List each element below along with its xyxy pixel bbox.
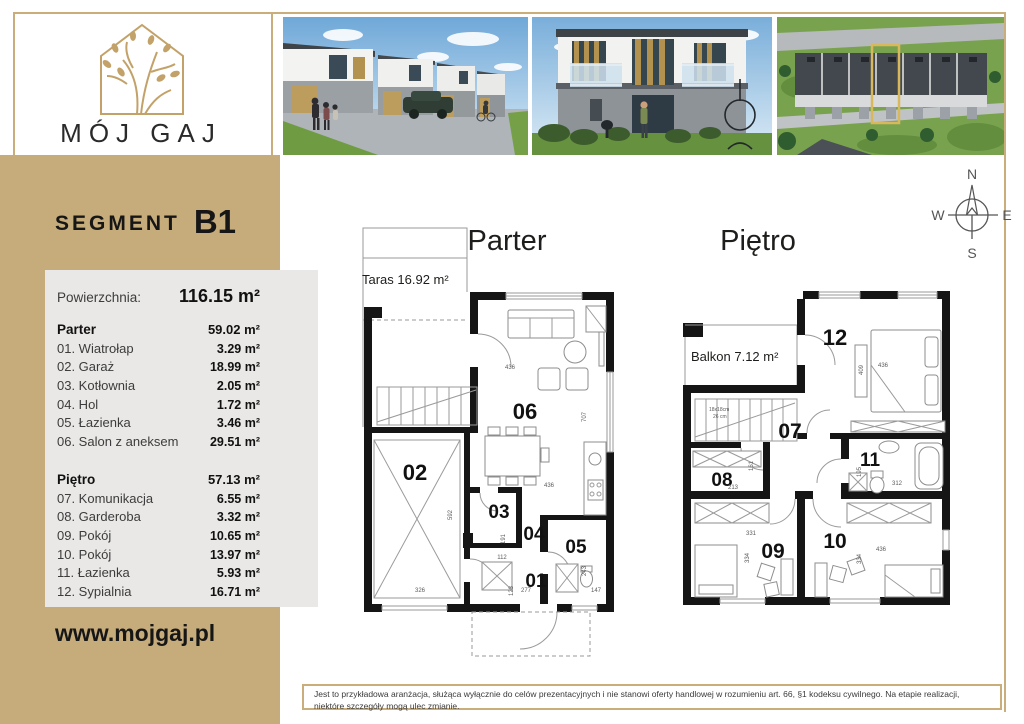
room-number: 12 [823, 325, 847, 350]
brochure-page: MÓJ GAJ [0, 0, 1024, 724]
room-row: 11. Łazienka5.93 m² [57, 565, 260, 584]
room-row: 02. Garaż18.99 m² [57, 359, 260, 378]
dim-label: 147 [591, 588, 602, 594]
segment-label: SEGMENT [55, 212, 180, 235]
terrace-label: Taras 16.92 m² [362, 272, 449, 287]
dim-label: 409 [859, 364, 865, 375]
stairs-note: 18x18cm [709, 407, 729, 413]
room-row: 03. Kotłownia2.05 m² [57, 378, 260, 397]
disclaimer-text: Jest to przykładowa aranżacja, służąca w… [314, 689, 959, 711]
entry-closet [482, 562, 512, 590]
compass-w: W [931, 207, 945, 223]
dim-label: 112 [497, 555, 507, 561]
website-link[interactable]: www.mojgaj.pl [55, 620, 215, 647]
room-row: 10. Pokój13.97 m² [57, 547, 260, 566]
brand-name: MÓJ GAJ [60, 118, 222, 148]
compass-rose: N W E S [930, 163, 1015, 263]
dim-label: 707 [582, 411, 588, 422]
porch [472, 612, 590, 656]
photo-aerial-view [777, 17, 1004, 155]
room-number: 02 [403, 460, 427, 485]
stairs [377, 387, 477, 425]
floor-header: Parter59.02 m² [57, 322, 260, 341]
dim-label: 213 [728, 485, 739, 491]
room-row: 09. Pokój10.65 m² [57, 528, 260, 547]
room-number: 09 [761, 540, 784, 563]
corridor-closet [851, 421, 945, 432]
logo-icon: MÓJ GAJ [15, 14, 267, 151]
disclaimer-box: Jest to przykładowa aranżacja, służąca w… [302, 684, 1002, 710]
dim-label: 436 [876, 547, 887, 553]
parter-title: Parter [468, 225, 547, 257]
wardrobe-09 [695, 503, 769, 523]
dim-label: 334 [745, 552, 751, 563]
room-row: 07. Komunikacja6.55 m² [57, 491, 260, 510]
wardrobe-10 [847, 503, 931, 523]
house-front [556, 29, 748, 139]
room-number: 03 [488, 502, 509, 523]
photo-street-view [283, 17, 528, 155]
room-row: 12. Sypialnia16.71 m² [57, 584, 260, 603]
dim-label: 331 [746, 531, 757, 537]
photo-house-front [532, 17, 772, 155]
floorplan-pietro: Piętro Balkon 7.12 m² [665, 212, 965, 667]
segment-heading: SEGMENTB1 [55, 203, 236, 241]
dim-label: 277 [521, 588, 532, 594]
dim-label: 334 [857, 553, 863, 564]
segment-number: B1 [194, 203, 236, 240]
area-list-panel: Powierzchnia: 116.15 m² Parter59.02 m² 0… [45, 270, 318, 607]
total-area-label: Powierzchnia: [57, 290, 141, 305]
room-row: 04. Hol1.72 m² [57, 397, 260, 416]
room-number: 04 [523, 524, 545, 545]
dim-label: 592 [448, 509, 454, 520]
dim-label: 326 [415, 588, 426, 594]
dim-label: 312 [892, 481, 903, 487]
dim-label: 436 [878, 363, 889, 369]
tree-leaves-icon [101, 31, 180, 83]
room-number: 11 [860, 450, 881, 471]
bedroom-10-furniture [815, 557, 943, 597]
compass-s: S [967, 245, 976, 261]
dim-label: 436 [544, 483, 555, 489]
dim-label: 161 [749, 460, 755, 471]
dim-label: 243 [582, 565, 588, 576]
balcony-label: Balkon 7.12 m² [691, 349, 779, 364]
total-area-value: 116.15 m² [179, 286, 260, 307]
floor-header: Piętro57.13 m² [57, 472, 260, 491]
floorplan-parter: Parter Taras 16.92 m² [352, 212, 664, 667]
room-rows: Parter59.02 m² 01. Wiatrołap3.29 m² 02. … [57, 322, 260, 603]
room-row: 08. Garderoba3.32 m² [57, 509, 260, 528]
stairs-note: 26 cm [713, 414, 727, 420]
room-row: 05. Łazienka3.46 m² [57, 415, 260, 434]
compass-e: E [1002, 207, 1011, 223]
bedroom-12-furniture [855, 330, 941, 412]
room-number: 07 [778, 420, 801, 443]
pietro-title: Piętro [720, 225, 796, 257]
dim-label: 436 [505, 365, 516, 371]
dim-label: 195 [857, 466, 863, 477]
dim-label: 123 [509, 585, 515, 596]
room-number: 05 [565, 537, 587, 558]
dining-set [485, 427, 549, 485]
room-number: 06 [513, 399, 537, 424]
room-row: 06. Salon z aneksem29.51 m² [57, 434, 260, 453]
dim-label: 191 [501, 533, 507, 544]
room-row: 01. Wiatrołap3.29 m² [57, 341, 260, 360]
logo-box: MÓJ GAJ [13, 12, 273, 157]
compass-n: N [967, 166, 977, 182]
total-area-row: Powierzchnia: 116.15 m² [57, 286, 260, 307]
room-number: 10 [823, 530, 846, 553]
